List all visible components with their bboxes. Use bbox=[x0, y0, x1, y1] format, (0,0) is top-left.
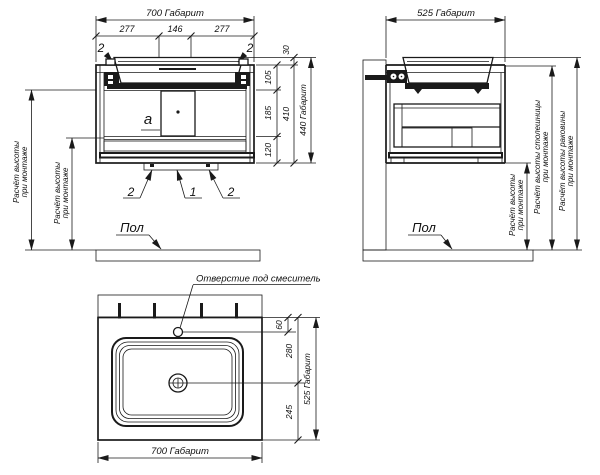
plan-faucet-hole: Отверстие под смеситель bbox=[174, 274, 321, 337]
side-wall-hatch bbox=[363, 60, 386, 250]
front-dim-width-label: 700 Габарит bbox=[146, 8, 204, 19]
plan-faucet-label: Отверстие под смеситель bbox=[196, 274, 321, 285]
side-sink-rim-band bbox=[405, 83, 489, 89]
front-dim-440: 440 Габарит bbox=[298, 84, 308, 136]
front-base-strip: 2 1 2 bbox=[123, 163, 240, 199]
front-callout-2-bottom-right: 2 bbox=[227, 185, 235, 199]
side-sink-note-b: при монтаже bbox=[566, 135, 575, 186]
front-mount-note-2b: при монтаже bbox=[61, 167, 70, 218]
front-floor: Пол bbox=[25, 220, 260, 261]
plan-dim-depths: 60 280 245 525 Габарит bbox=[262, 314, 320, 444]
front-dim-277-left: 277 bbox=[118, 24, 135, 34]
front-dim-185: 185 bbox=[263, 106, 273, 120]
front-callout-brackets-top: 2 2 bbox=[97, 41, 254, 62]
side-floor-label: Пол bbox=[412, 220, 436, 235]
front-dim-146: 146 bbox=[167, 24, 182, 34]
side-mount-note-b: при монтаже bbox=[516, 179, 525, 230]
front-hatched-panel: a bbox=[141, 91, 195, 136]
front-dim-width: 700 Габарит 277 146 277 bbox=[93, 8, 258, 62]
side-floor: Пол bbox=[363, 220, 582, 261]
front-callout-1-bottom: 1 bbox=[190, 185, 197, 199]
plan-dim-width-label: 700 Габарит bbox=[151, 446, 209, 457]
technical-drawing-svg: 700 Габарит 277 146 277 2 2 bbox=[0, 0, 600, 475]
plan-view: Отверстие под смеситель 60 280 245 525 Г… bbox=[98, 274, 321, 464]
plan-dim-width: 700 Габарит bbox=[98, 442, 262, 463]
front-sink-rim-band bbox=[107, 83, 247, 89]
front-view: 700 Габарит 277 146 277 2 2 bbox=[12, 8, 316, 261]
front-mount-note-1b: при монтаже bbox=[20, 146, 29, 197]
plan-mount-ticks bbox=[118, 303, 238, 319]
front-dim-277-right: 277 bbox=[213, 24, 230, 34]
side-view: 525 Габарит bbox=[363, 8, 582, 261]
drawing-sheet: 700 Габарит 277 146 277 2 2 bbox=[0, 0, 600, 475]
front-dim-mount-heights: Расчёт высоты при монтаже Расчёт высоты … bbox=[12, 90, 104, 250]
plan-dim-280: 280 bbox=[284, 344, 294, 359]
front-dim-105: 105 bbox=[263, 70, 273, 84]
front-callout-a: a bbox=[144, 111, 152, 128]
plan-dim-245: 245 bbox=[284, 405, 294, 420]
side-counter-note-b: при монтаже bbox=[541, 131, 550, 182]
side-dim-width: 525 Габарит bbox=[386, 8, 505, 62]
plan-dim-525: 525 Габарит bbox=[302, 353, 312, 405]
side-wall-bolt bbox=[365, 75, 388, 80]
front-callout-2-bottom-left: 2 bbox=[127, 185, 135, 199]
front-sink-basin bbox=[107, 58, 247, 90]
plan-sink-bowl bbox=[112, 338, 243, 426]
front-dim-120: 120 bbox=[263, 143, 273, 157]
front-floor-label: Пол bbox=[120, 220, 144, 235]
front-dim-410: 410 bbox=[281, 107, 291, 121]
front-dim-30: 30 bbox=[281, 45, 291, 55]
plan-drain bbox=[169, 374, 306, 392]
front-callout-2-top-left: 2 bbox=[97, 41, 105, 55]
front-callout-2-top-right: 2 bbox=[246, 41, 254, 55]
side-drawer bbox=[394, 104, 500, 147]
side-dim-width-label: 525 Габарит bbox=[417, 8, 475, 19]
side-sink-basin bbox=[403, 58, 493, 95]
side-dim-mount-heights: Расчёт высоты при монтаже Расчёт высоты … bbox=[493, 58, 581, 251]
plan-dim-60: 60 bbox=[274, 320, 284, 330]
